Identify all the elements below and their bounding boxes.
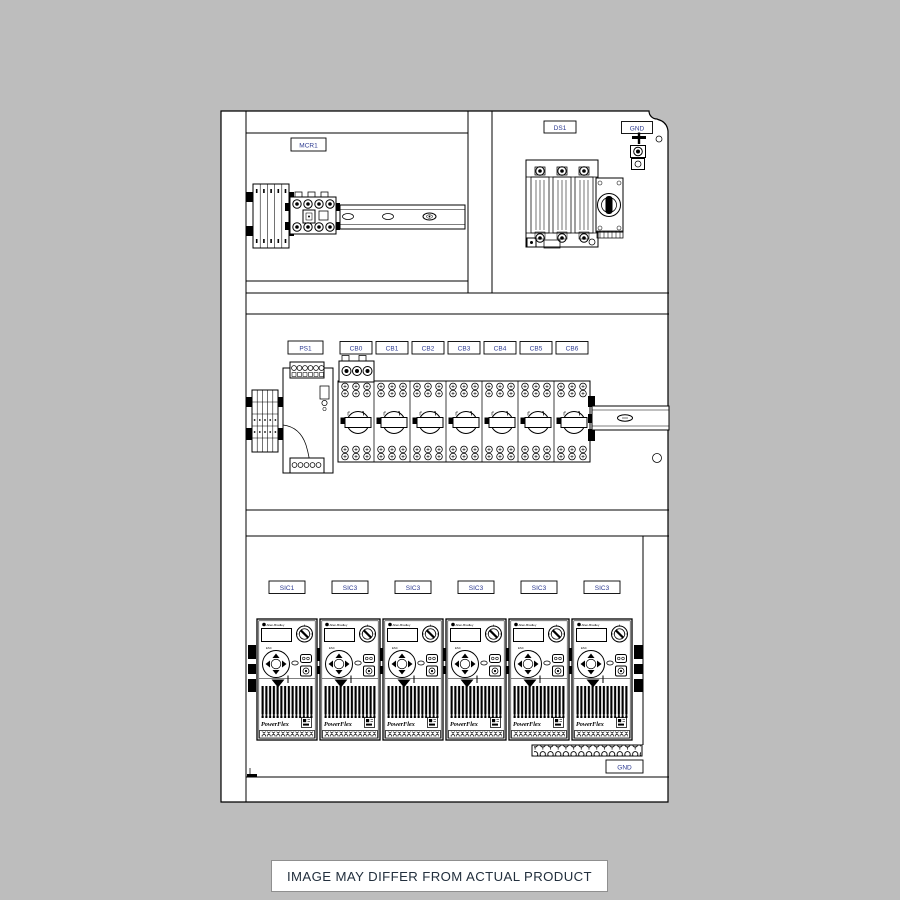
svg-text:PS1: PS1: [299, 346, 312, 353]
svg-text:CB5: CB5: [530, 346, 543, 353]
gnd-bottom-tag: GND: [606, 760, 643, 773]
panel-drawing: Allen-Bradley ESC: [0, 0, 900, 900]
caption-box: IMAGE MAY DIFFER FROM ACTUAL PRODUCT: [271, 860, 608, 892]
svg-text:MCR1: MCR1: [299, 143, 318, 150]
drive-1: [257, 619, 317, 740]
drive-2: [320, 619, 380, 740]
svg-text:SIC3: SIC3: [406, 585, 421, 592]
svg-text:SIC1: SIC1: [280, 585, 295, 592]
svg-text:SIC3: SIC3: [469, 585, 484, 592]
svg-text:GND: GND: [630, 126, 645, 133]
svg-text:CB3: CB3: [458, 346, 471, 353]
ps1-tag: PS1: [288, 341, 323, 354]
svg-text:SIC3: SIC3: [343, 585, 358, 592]
svg-text:CB4: CB4: [494, 346, 507, 353]
svg-text:SIC3: SIC3: [532, 585, 547, 592]
drive-6: [572, 619, 632, 740]
screenshot-canvas: Allen-Bradley ESC: [0, 0, 900, 900]
drive-3: [383, 619, 443, 740]
ds1-tag: DS1: [544, 121, 576, 133]
power-supply-ps1: [283, 362, 333, 473]
svg-text:GND: GND: [617, 765, 632, 772]
breaker-tags: CB0 CB1 CB2 CB3 CB4 CB5 CB6: [340, 342, 588, 355]
contactor-mcr1: [285, 192, 340, 234]
gnd-top-tag: GND: [622, 122, 653, 134]
svg-text:CB6: CB6: [566, 346, 579, 353]
svg-text:CB2: CB2: [422, 346, 435, 353]
drive-5: [509, 619, 569, 740]
gnd-bus-bar: [532, 745, 642, 756]
svg-text:DS1: DS1: [554, 125, 567, 132]
caption-text: IMAGE MAY DIFFER FROM ACTUAL PRODUCT: [287, 869, 592, 884]
svg-text:SIC3: SIC3: [595, 585, 610, 592]
mcr1-tag: MCR1: [291, 138, 326, 151]
rotary-handle-icon: [596, 178, 623, 238]
svg-text:CB0: CB0: [350, 346, 363, 353]
drive-4: [446, 619, 506, 740]
din-rail-top: [340, 205, 465, 229]
svg-text:CB1: CB1: [386, 346, 399, 353]
